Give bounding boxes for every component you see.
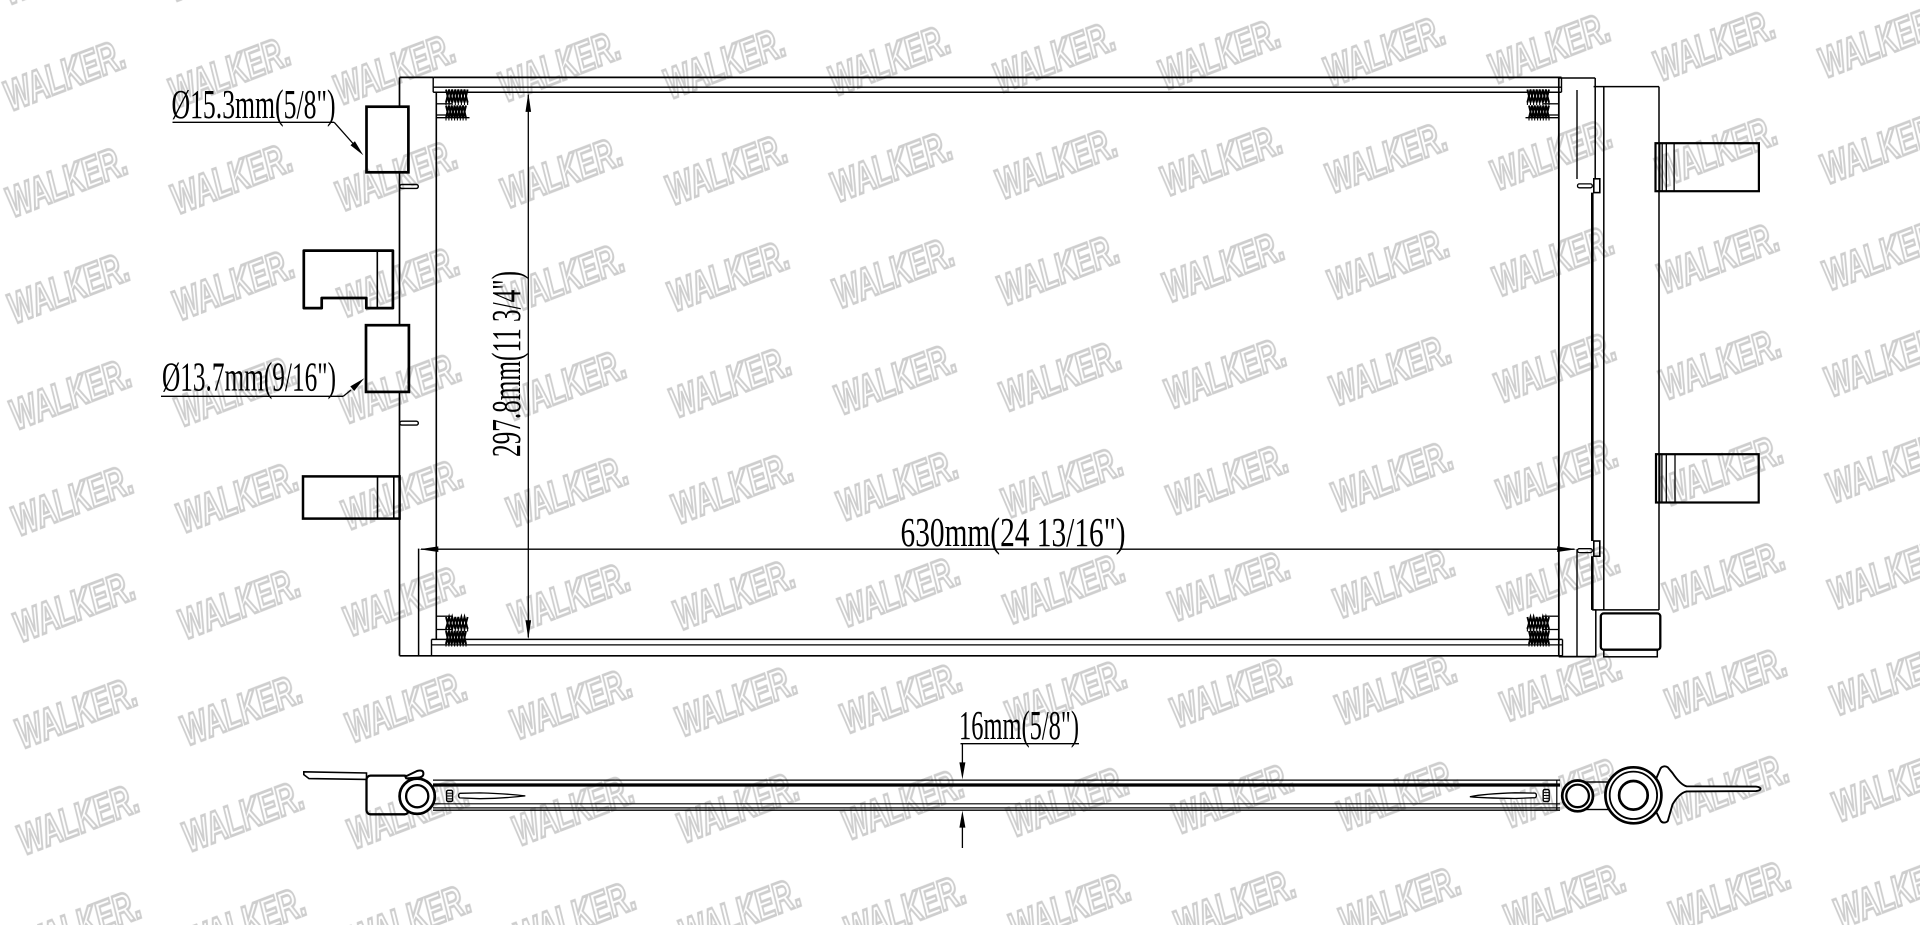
svg-text:630mm(24 13/16"): 630mm(24 13/16") [901,509,1126,555]
svg-text:16mm(5/8"): 16mm(5/8") [959,702,1079,748]
svg-text:Ø13.7mm(9/16"): Ø13.7mm(9/16") [162,354,336,400]
svg-text:Ø15.3mm(5/8"): Ø15.3mm(5/8") [172,81,336,127]
svg-text:297.8mm(11 3/4"): 297.8mm(11 3/4") [483,271,529,457]
